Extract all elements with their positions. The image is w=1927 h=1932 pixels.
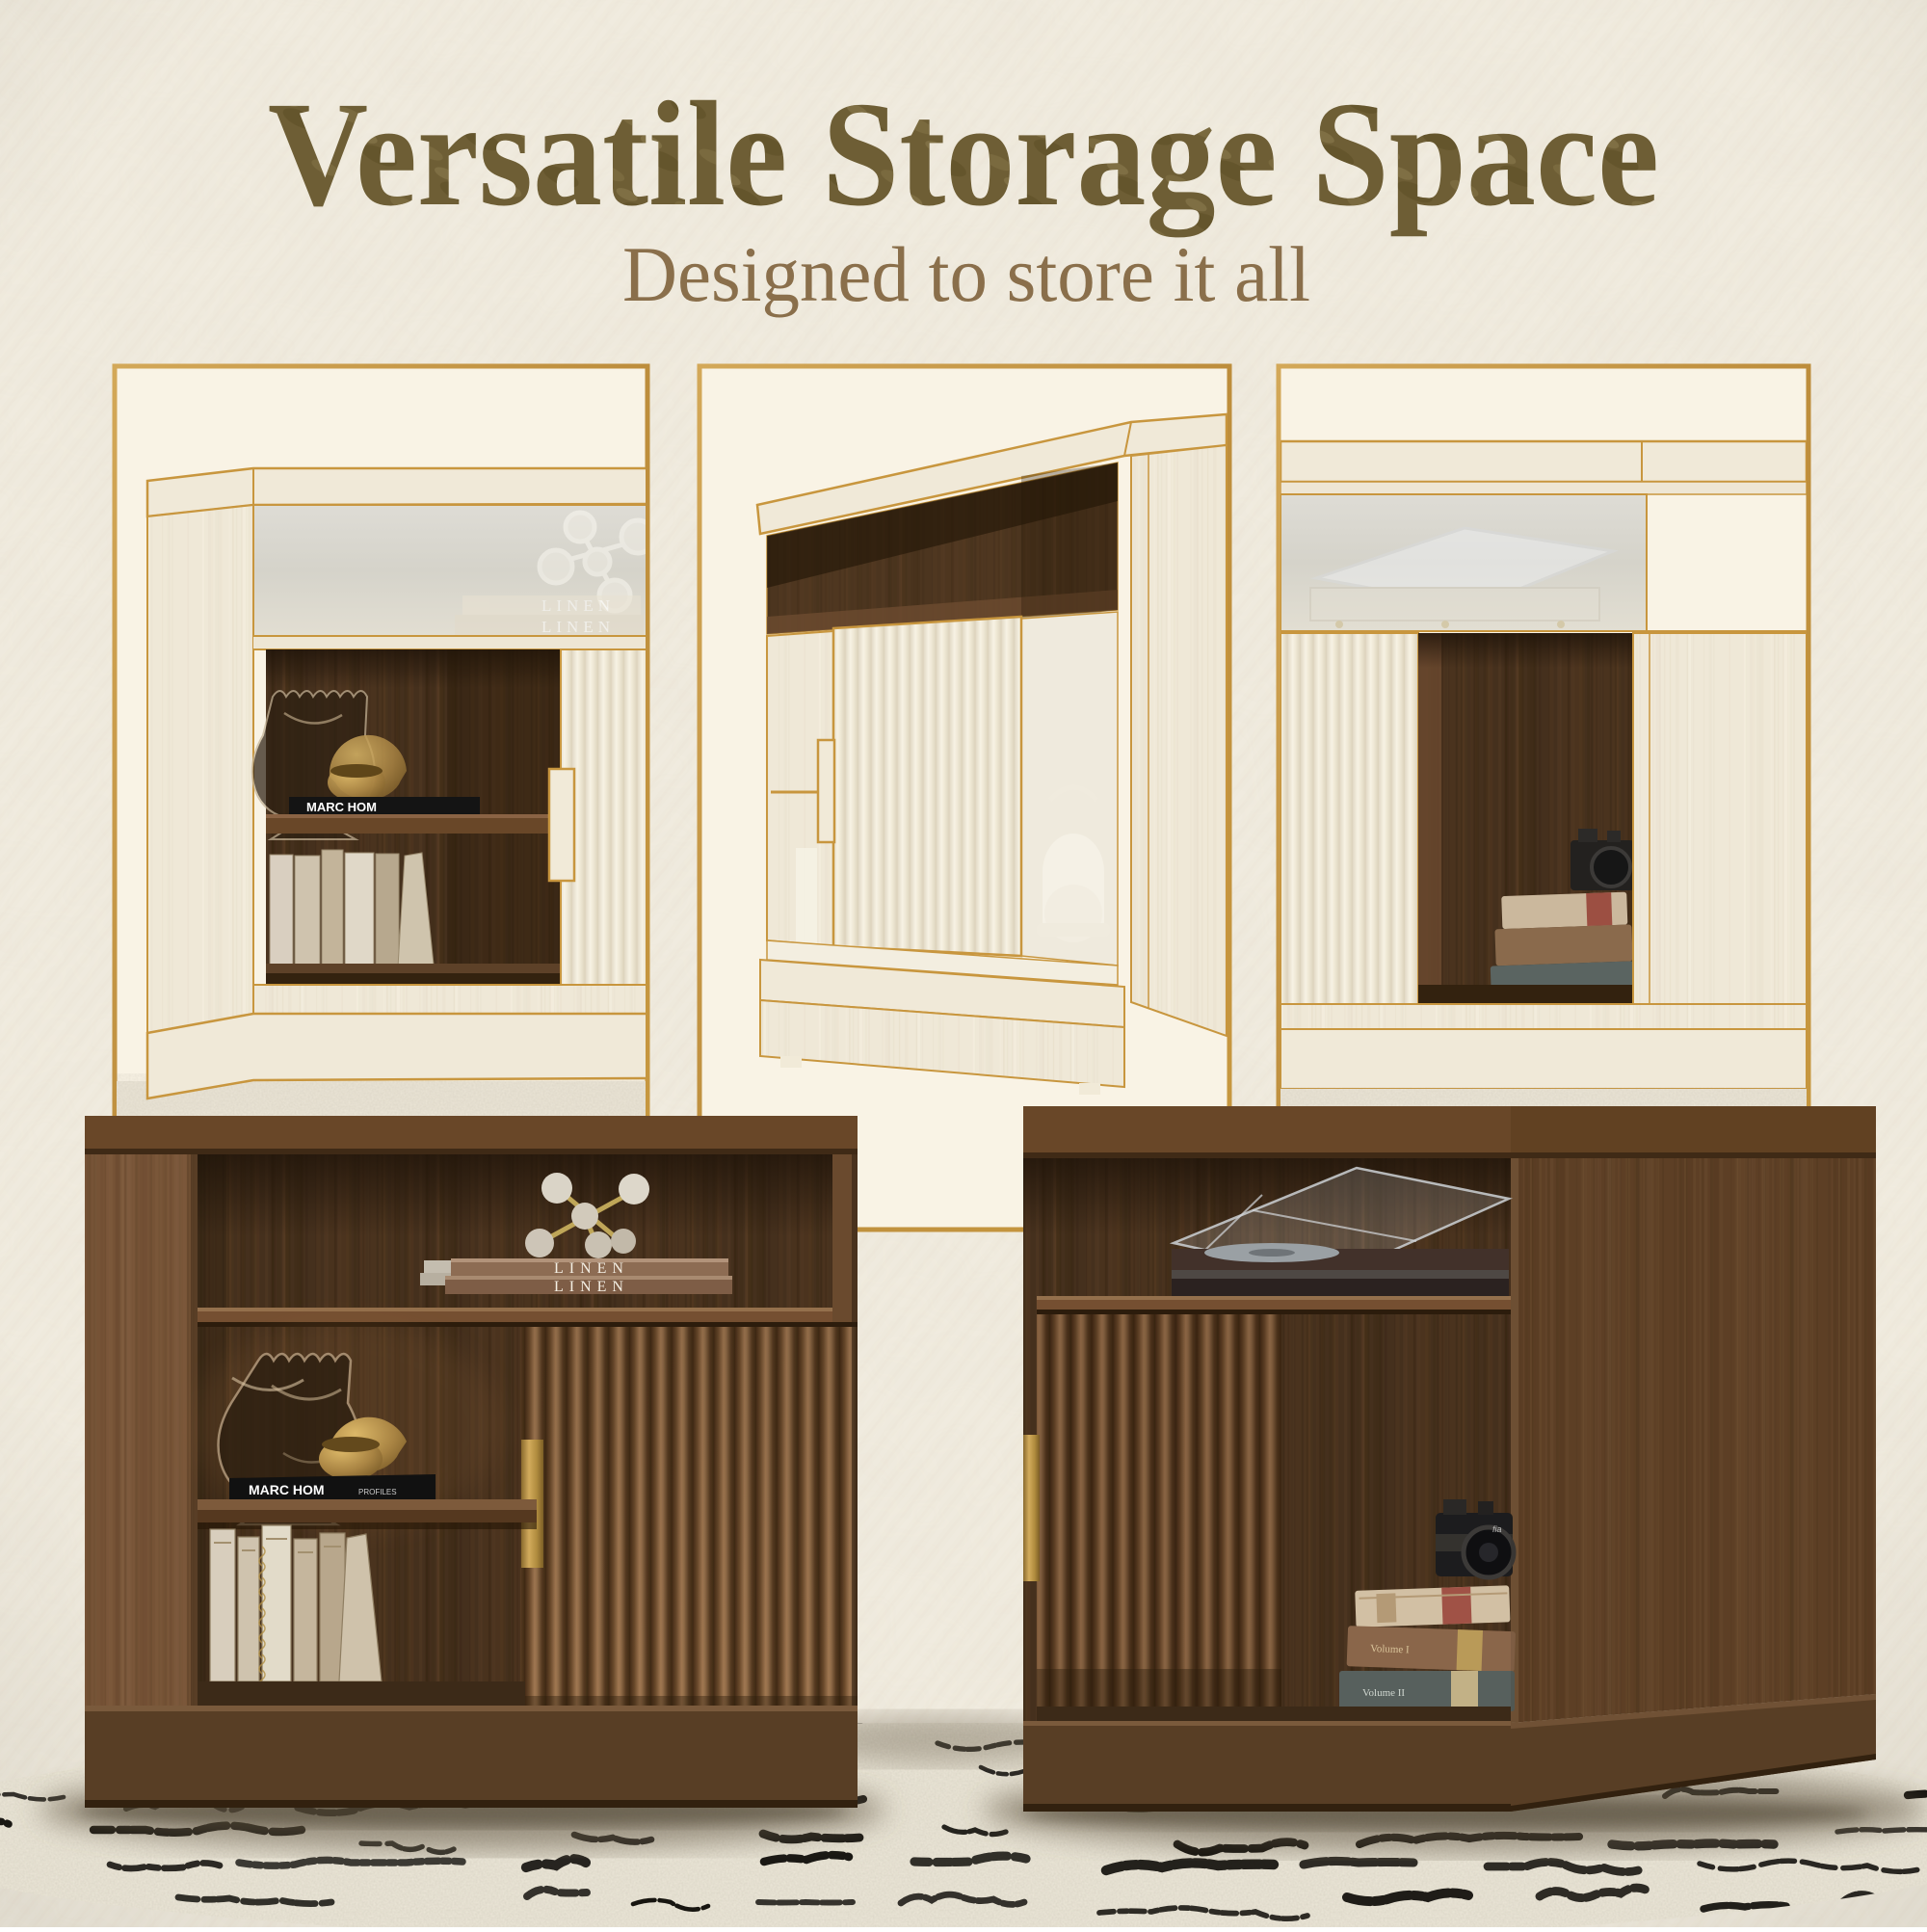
- svg-text:LINEN: LINEN: [541, 618, 615, 636]
- svg-text:Volume I: Volume I: [1370, 1643, 1410, 1655]
- svg-text:fia: fia: [1492, 1524, 1502, 1534]
- svg-text:Volume II: Volume II: [1362, 1687, 1405, 1699]
- svg-text:LINEN: LINEN: [541, 596, 615, 615]
- svg-text:LINEN: LINEN: [554, 1260, 629, 1277]
- svg-text:MARC HOM: MARC HOM: [249, 1482, 325, 1497]
- svg-text:Designed to store it all: Designed to store it all: [622, 230, 1310, 318]
- svg-text:MARC HOM: MARC HOM: [306, 800, 377, 814]
- svg-text:PROFILES: PROFILES: [358, 1488, 397, 1496]
- svg-text:Versatile Storage Space: Versatile Storage Space: [268, 70, 1659, 238]
- svg-text:LINEN: LINEN: [554, 1279, 629, 1295]
